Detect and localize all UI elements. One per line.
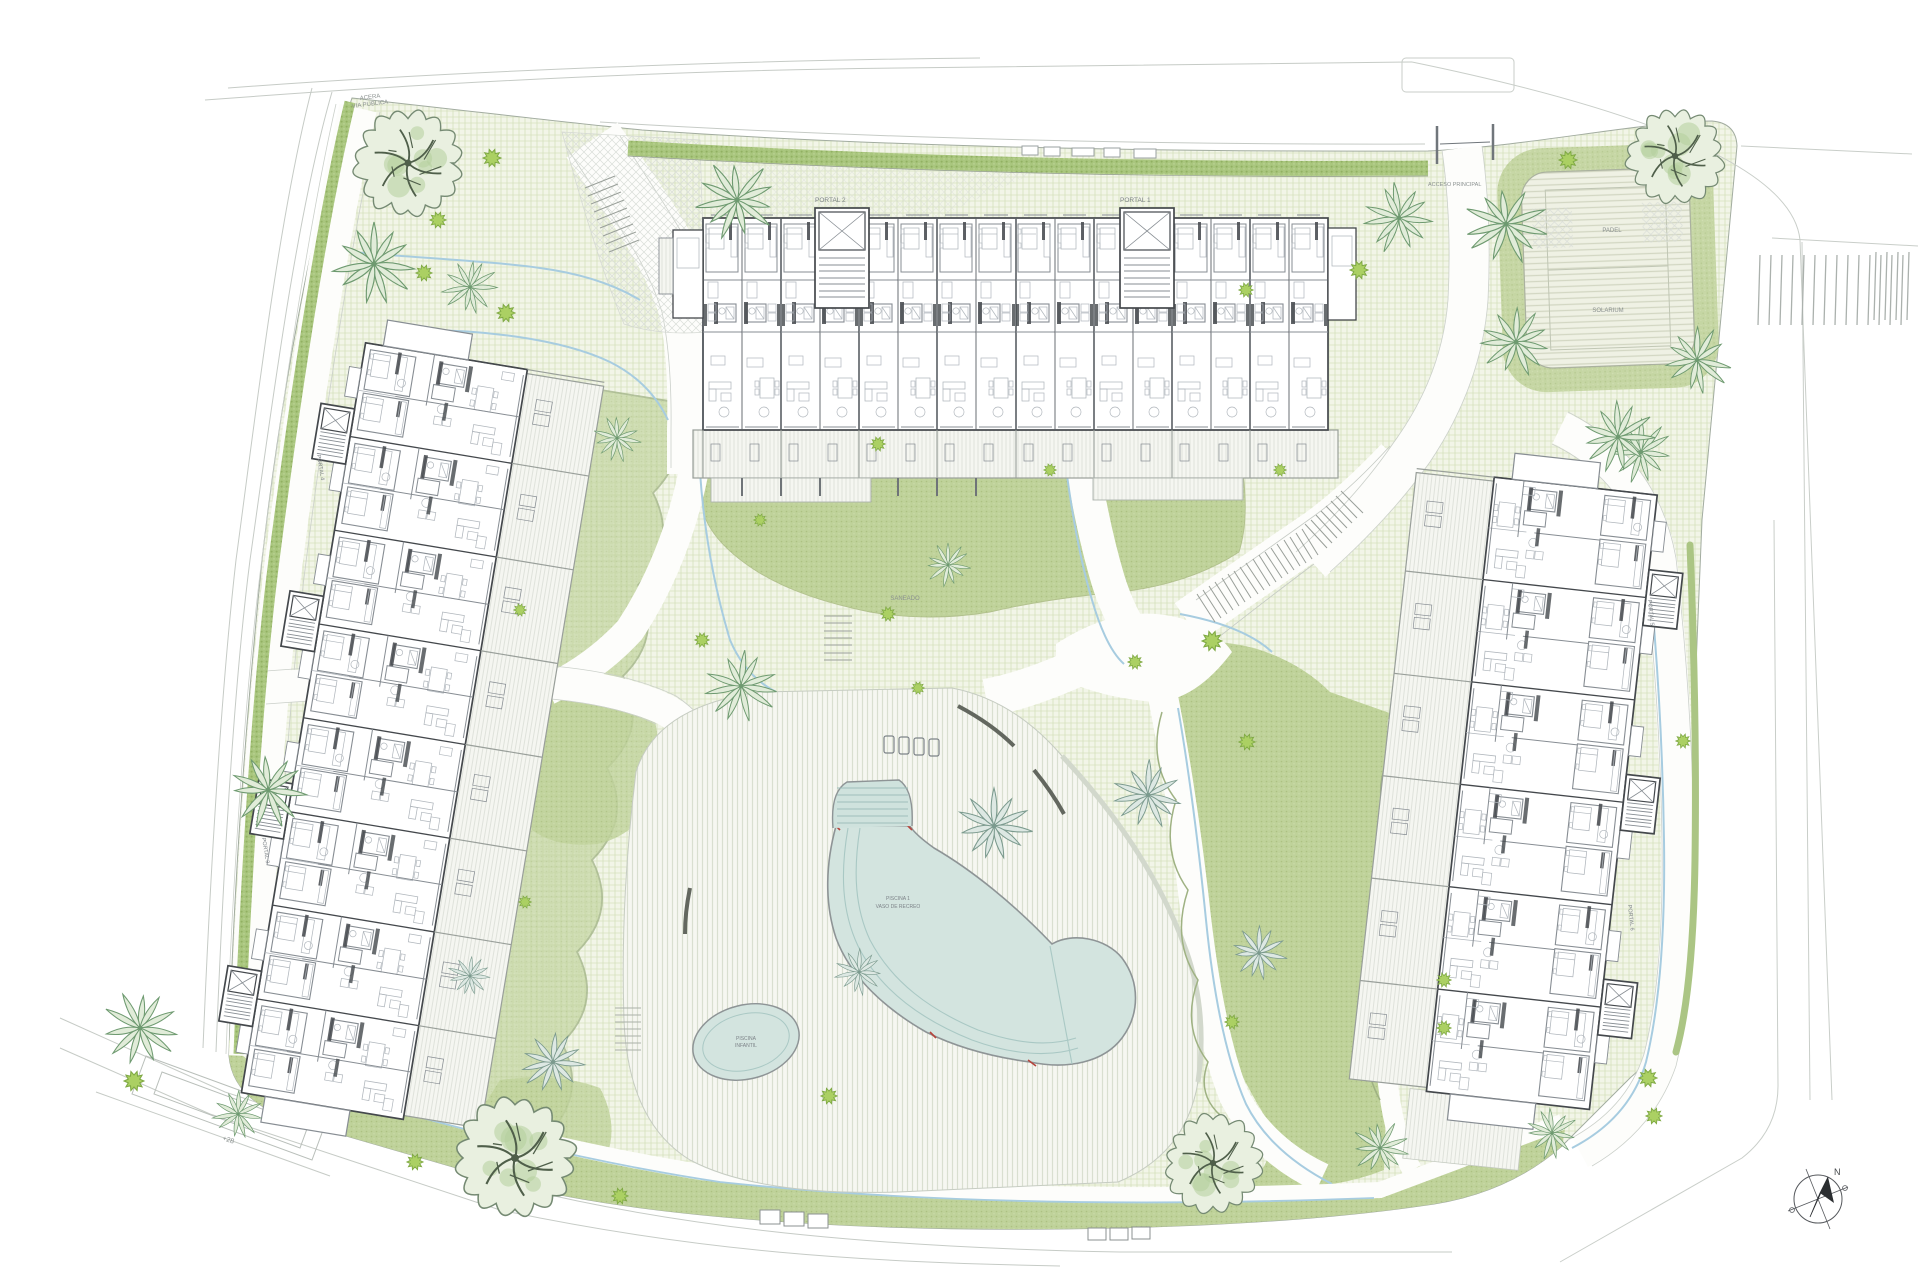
svg-text:PORTAL 2: PORTAL 2 xyxy=(815,197,846,204)
svg-text:PADEL: PADEL xyxy=(1602,228,1622,234)
svg-text:N: N xyxy=(1834,1167,1841,1177)
svg-text:VASO DE RECREO: VASO DE RECREO xyxy=(876,904,921,910)
svg-text:SANEADO: SANEADO xyxy=(890,596,920,602)
svg-text:PISCINA 1: PISCINA 1 xyxy=(886,896,910,902)
svg-text:PISCINA: PISCINA xyxy=(736,1036,757,1042)
svg-text:ACCESO PRINCIPAL: ACCESO PRINCIPAL xyxy=(1428,182,1481,188)
svg-text:INFANTIL: INFANTIL xyxy=(735,1043,757,1049)
svg-text:PORTAL 1: PORTAL 1 xyxy=(1120,197,1151,204)
svg-text:SOLARIUM: SOLARIUM xyxy=(1592,308,1623,314)
